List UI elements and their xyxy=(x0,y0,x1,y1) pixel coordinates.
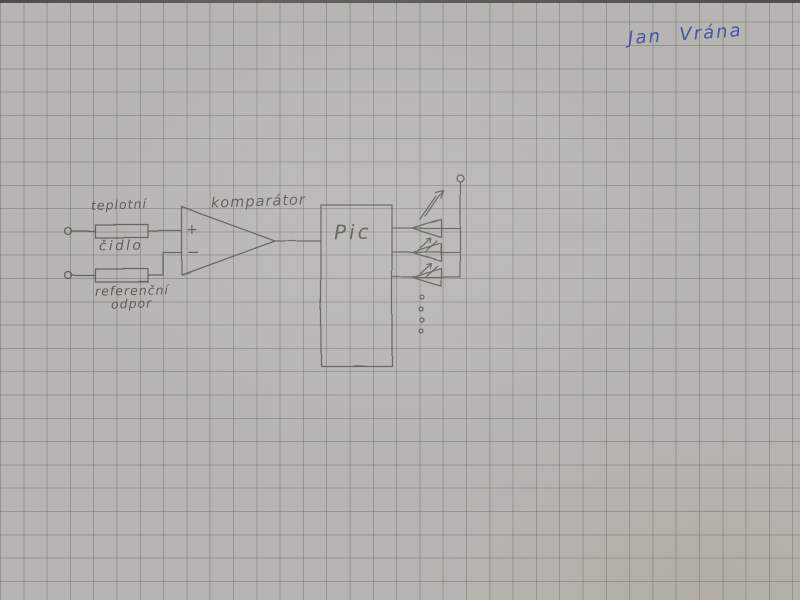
resistor-symbol-sensor xyxy=(95,225,148,238)
continuation-dots xyxy=(419,295,424,333)
sensor-label-line2: čidlo xyxy=(99,240,143,254)
photo-of-squared-paper: teplotní čidlo referenční odpor komparát… xyxy=(0,0,800,600)
comparator-label: komparátor xyxy=(211,193,306,211)
emission-arrows-icon xyxy=(420,190,443,276)
comparator-symbol xyxy=(182,207,275,275)
terminal-icon-supply xyxy=(457,175,464,182)
reference-label-line2: odpor xyxy=(111,297,153,311)
sensor-label-line1: teplotní xyxy=(91,198,147,212)
resistor-symbol-reference xyxy=(95,269,148,282)
wire xyxy=(148,253,182,275)
pic-label: Pic xyxy=(334,222,372,243)
terminal-icon-sensor xyxy=(65,228,72,235)
photo-edge xyxy=(0,0,800,3)
comparator-plus-input: + xyxy=(186,223,198,237)
comparator-minus-input: − xyxy=(187,245,200,260)
terminal-icon-reference xyxy=(65,272,72,279)
